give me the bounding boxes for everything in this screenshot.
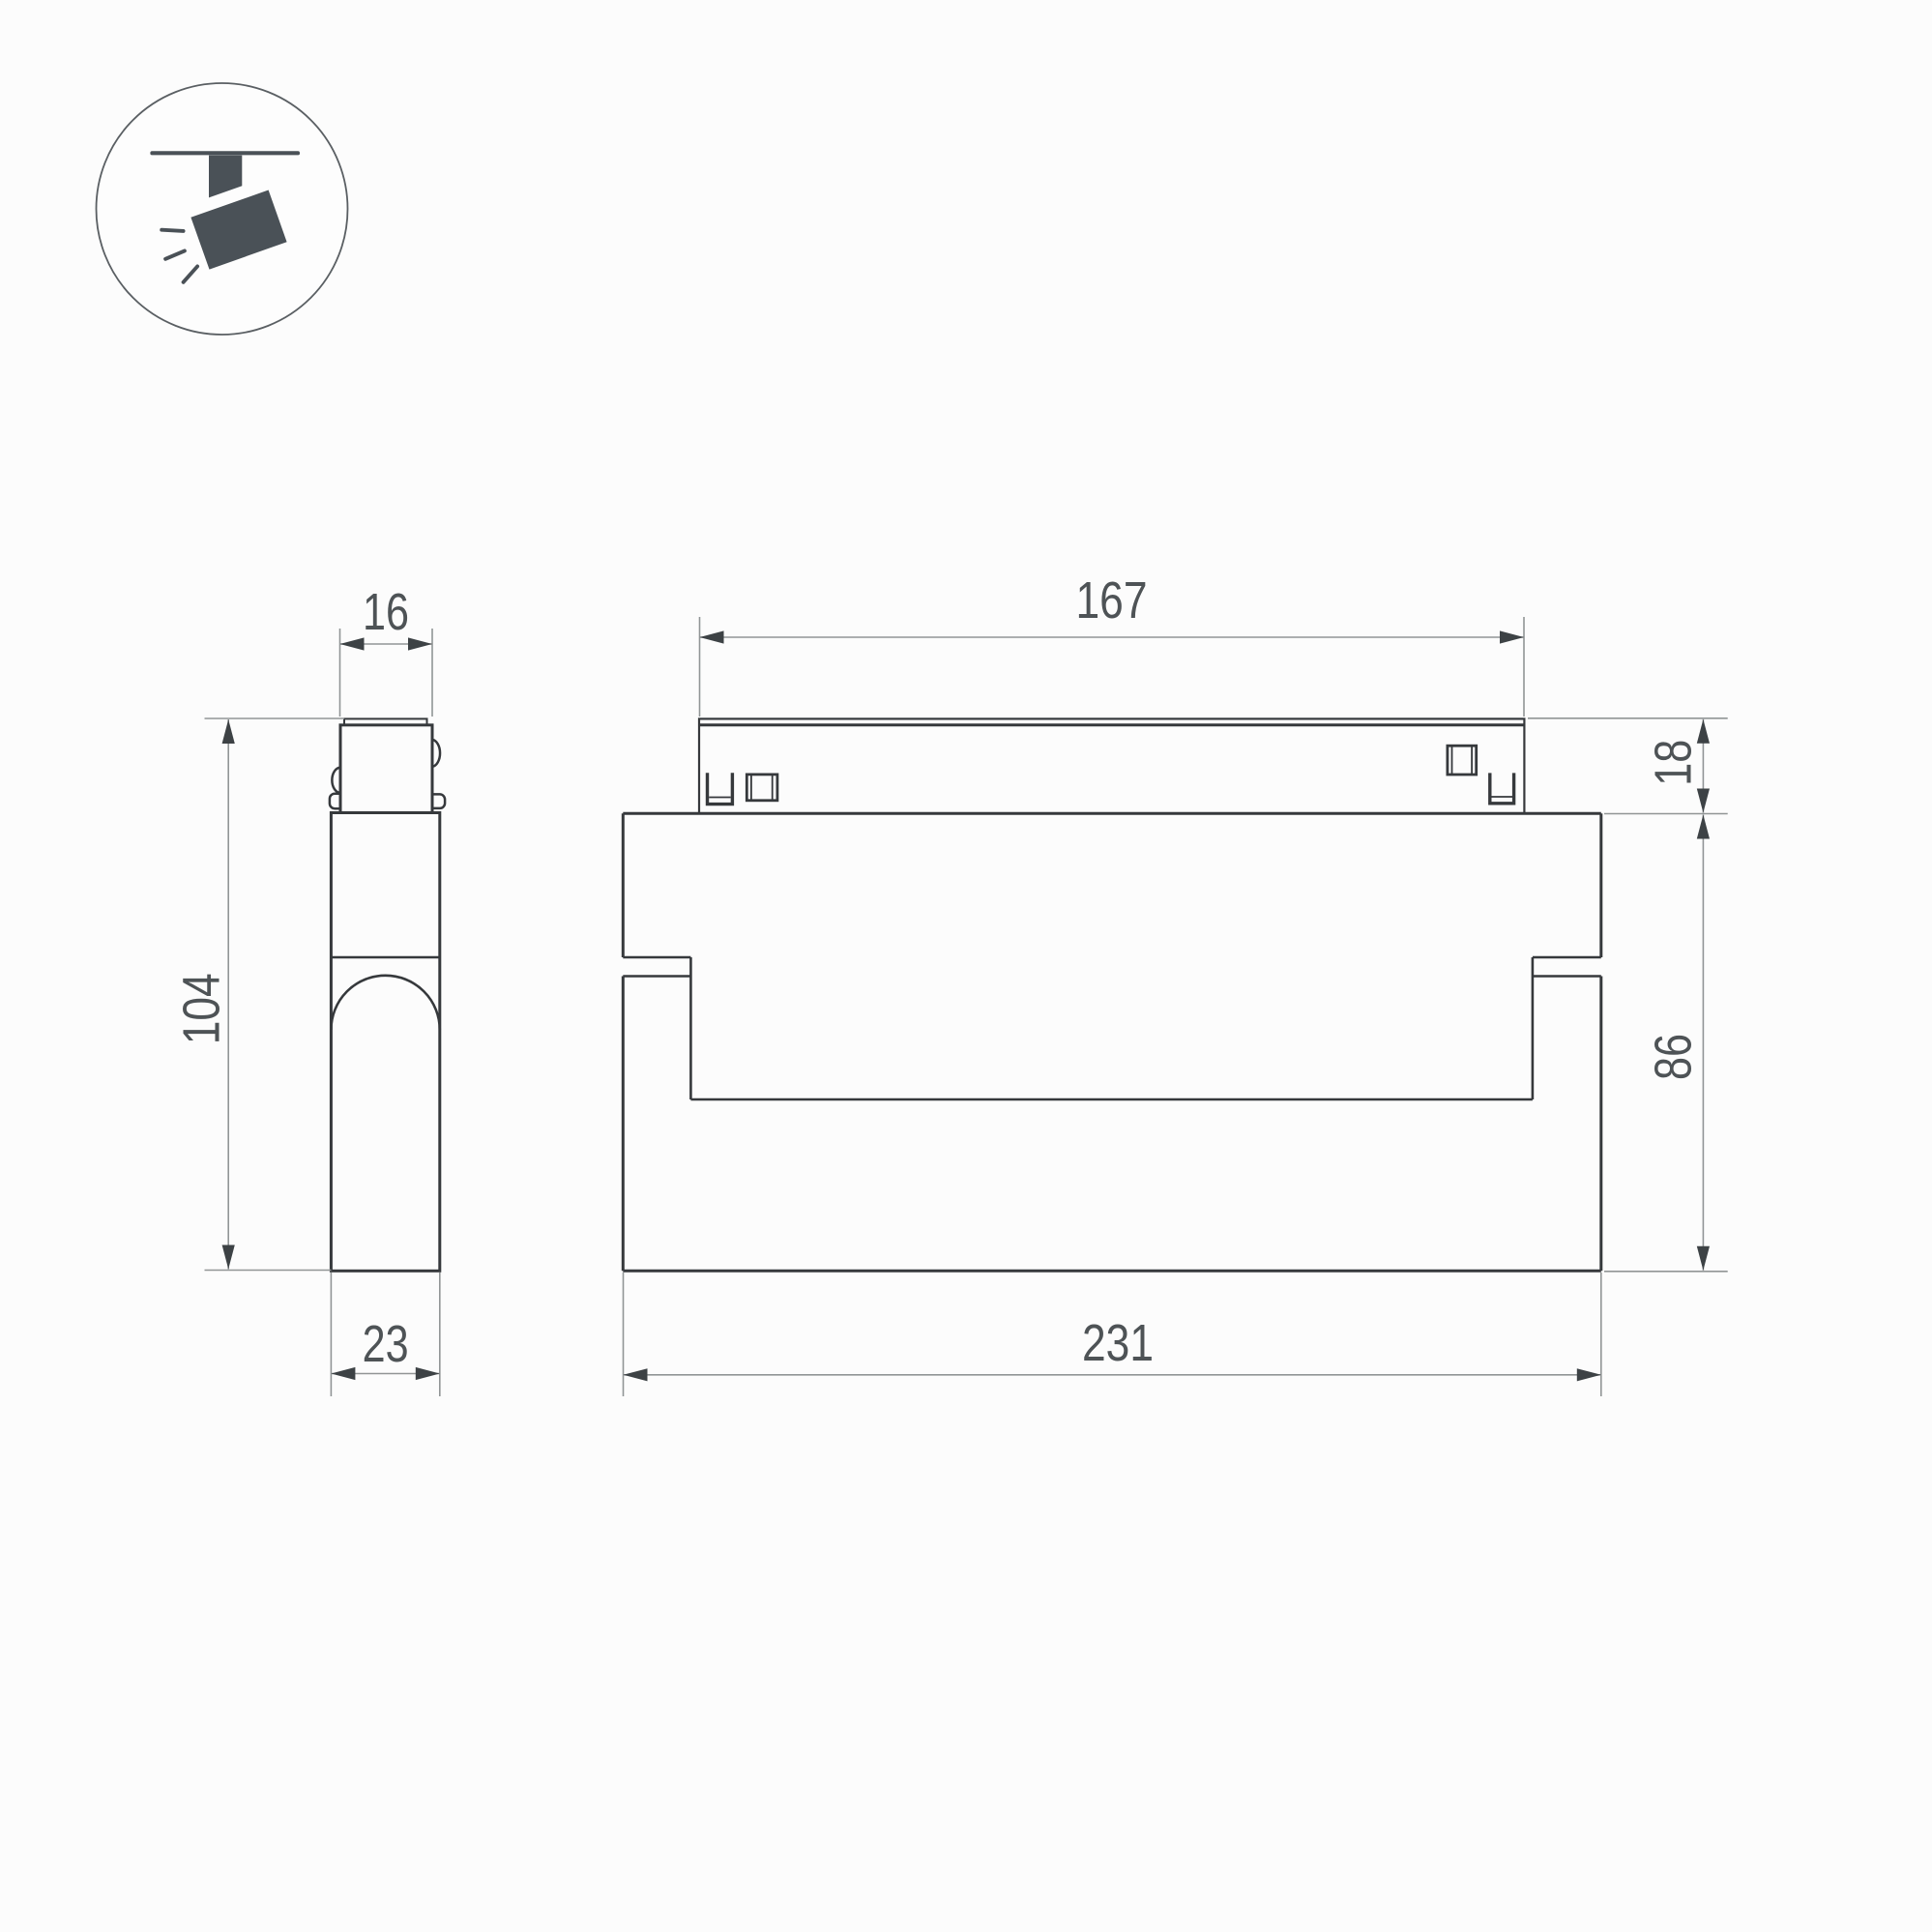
- svg-text:16: 16: [363, 583, 409, 641]
- svg-text:104: 104: [172, 973, 230, 1044]
- svg-text:231: 231: [1082, 1314, 1154, 1372]
- svg-text:86: 86: [1645, 1034, 1703, 1080]
- svg-text:18: 18: [1645, 740, 1703, 786]
- svg-text:167: 167: [1076, 571, 1148, 629]
- svg-text:23: 23: [363, 1315, 409, 1373]
